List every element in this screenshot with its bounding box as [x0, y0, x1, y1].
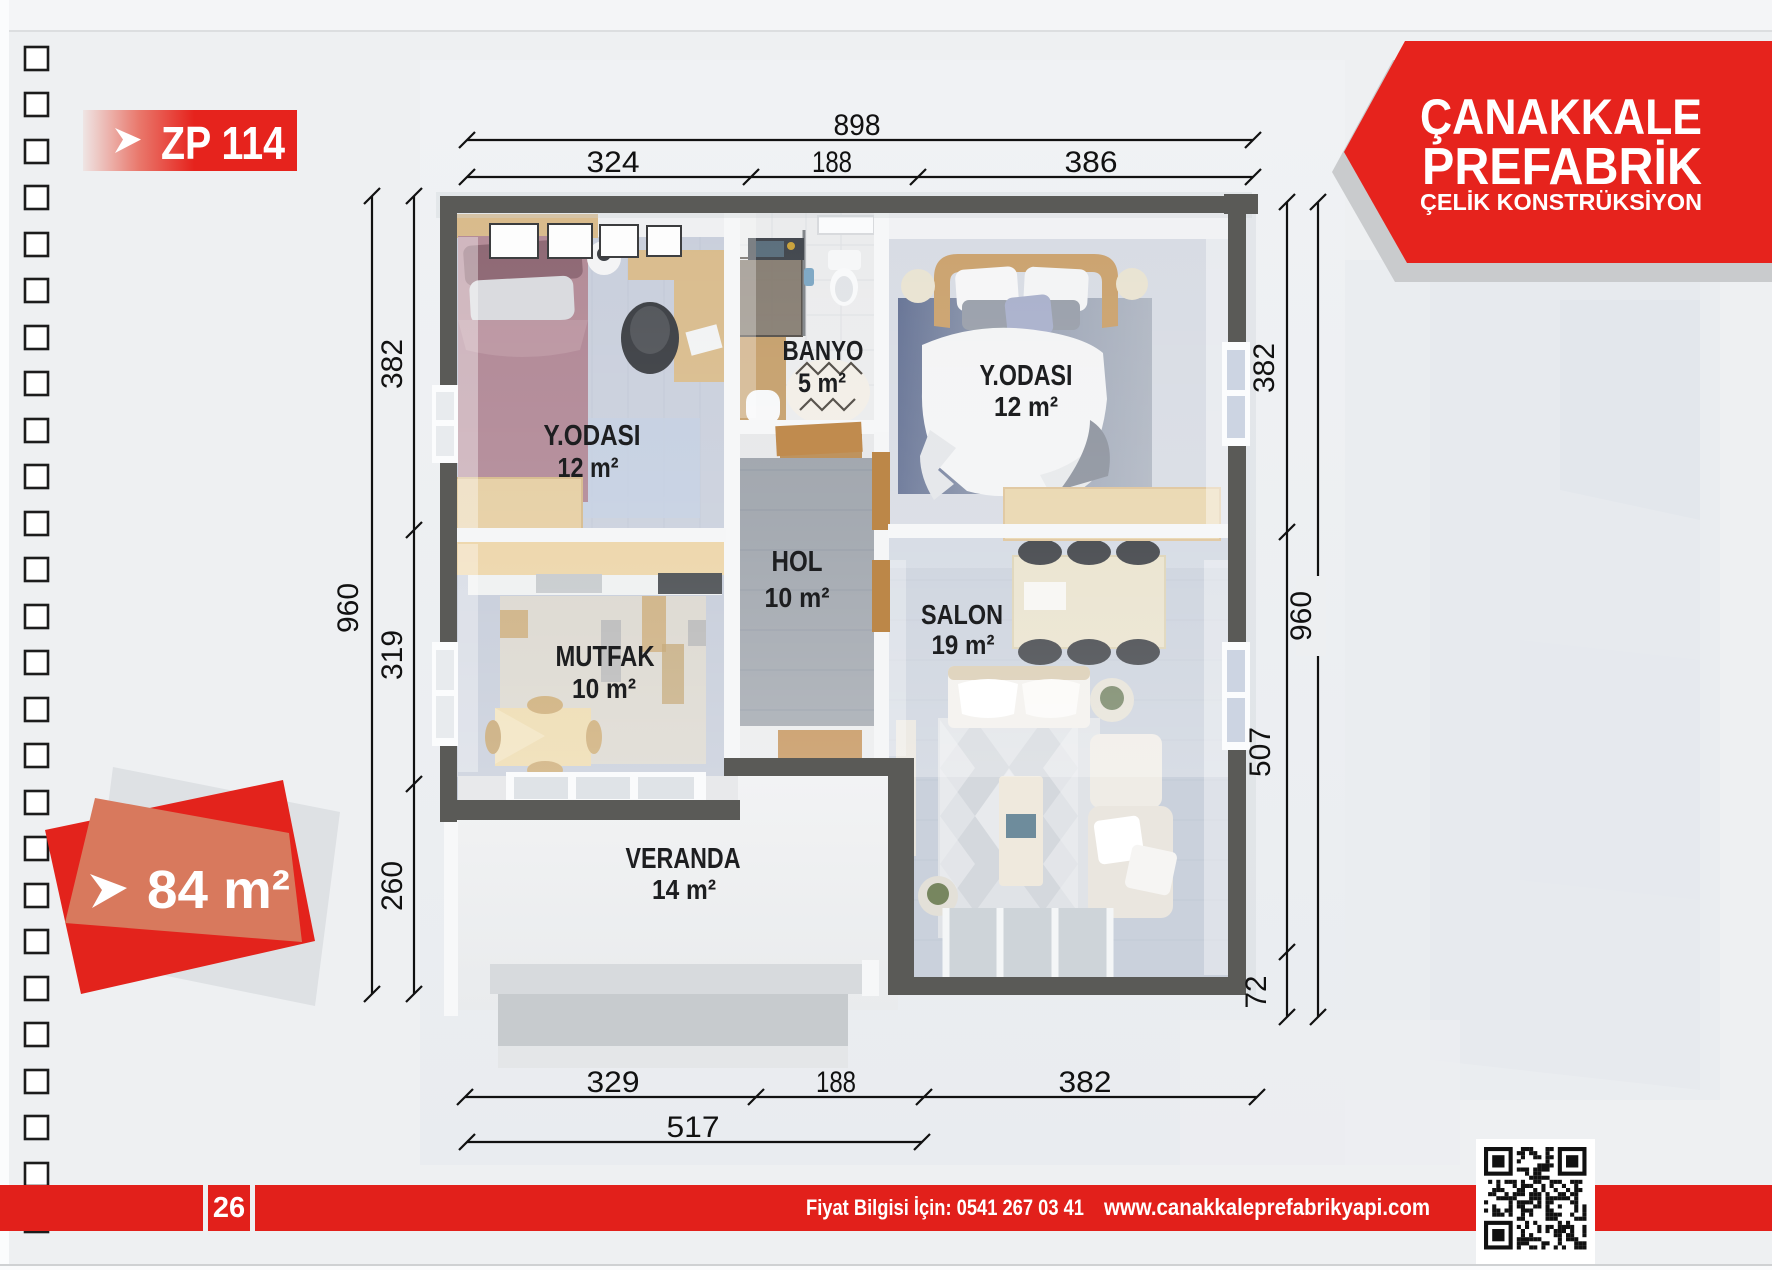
- svg-text:898: 898: [834, 109, 881, 142]
- svg-text:Y.ODASI: Y.ODASI: [544, 420, 641, 452]
- svg-text:BANYO: BANYO: [783, 335, 864, 366]
- svg-text:10 m²: 10 m²: [572, 673, 636, 704]
- svg-text:HOL: HOL: [772, 546, 823, 578]
- svg-text:Y.ODASI: Y.ODASI: [980, 360, 1073, 392]
- svg-text:324: 324: [587, 146, 640, 179]
- svg-text:5 m²: 5 m²: [798, 368, 846, 398]
- svg-text:382: 382: [1248, 343, 1281, 393]
- svg-text:386: 386: [1065, 146, 1118, 179]
- svg-text:MUTFAK: MUTFAK: [556, 641, 655, 673]
- svg-text:72: 72: [1240, 976, 1273, 1009]
- svg-text:507: 507: [1244, 727, 1277, 777]
- svg-text:12 m²: 12 m²: [558, 452, 619, 483]
- svg-text:319: 319: [376, 630, 409, 680]
- svg-text:Fiyat Bilgisi İçin: 0541 267 0: Fiyat Bilgisi İçin: 0541 267 03 41: [806, 1195, 1084, 1220]
- svg-text:517: 517: [667, 1111, 720, 1144]
- svg-text:329: 329: [587, 1066, 640, 1099]
- svg-text:960: 960: [332, 583, 365, 633]
- svg-text:SALON: SALON: [921, 599, 1003, 630]
- svg-text:10 m²: 10 m²: [765, 582, 830, 613]
- svg-text:188: 188: [812, 146, 852, 179]
- svg-text:960: 960: [1285, 591, 1318, 641]
- svg-text:12 m²: 12 m²: [994, 391, 1058, 422]
- svg-text:14 m²: 14 m²: [652, 874, 716, 905]
- svg-text:260: 260: [376, 861, 409, 911]
- svg-text:382: 382: [376, 339, 409, 389]
- svg-text:382: 382: [1059, 1066, 1112, 1099]
- svg-text:VERANDA: VERANDA: [626, 843, 741, 875]
- svg-text:www.canakkaleprefabrikyapi.com: www.canakkaleprefabrikyapi.com: [1103, 1194, 1430, 1220]
- svg-text:188: 188: [816, 1066, 856, 1099]
- svg-text:19 m²: 19 m²: [932, 630, 995, 660]
